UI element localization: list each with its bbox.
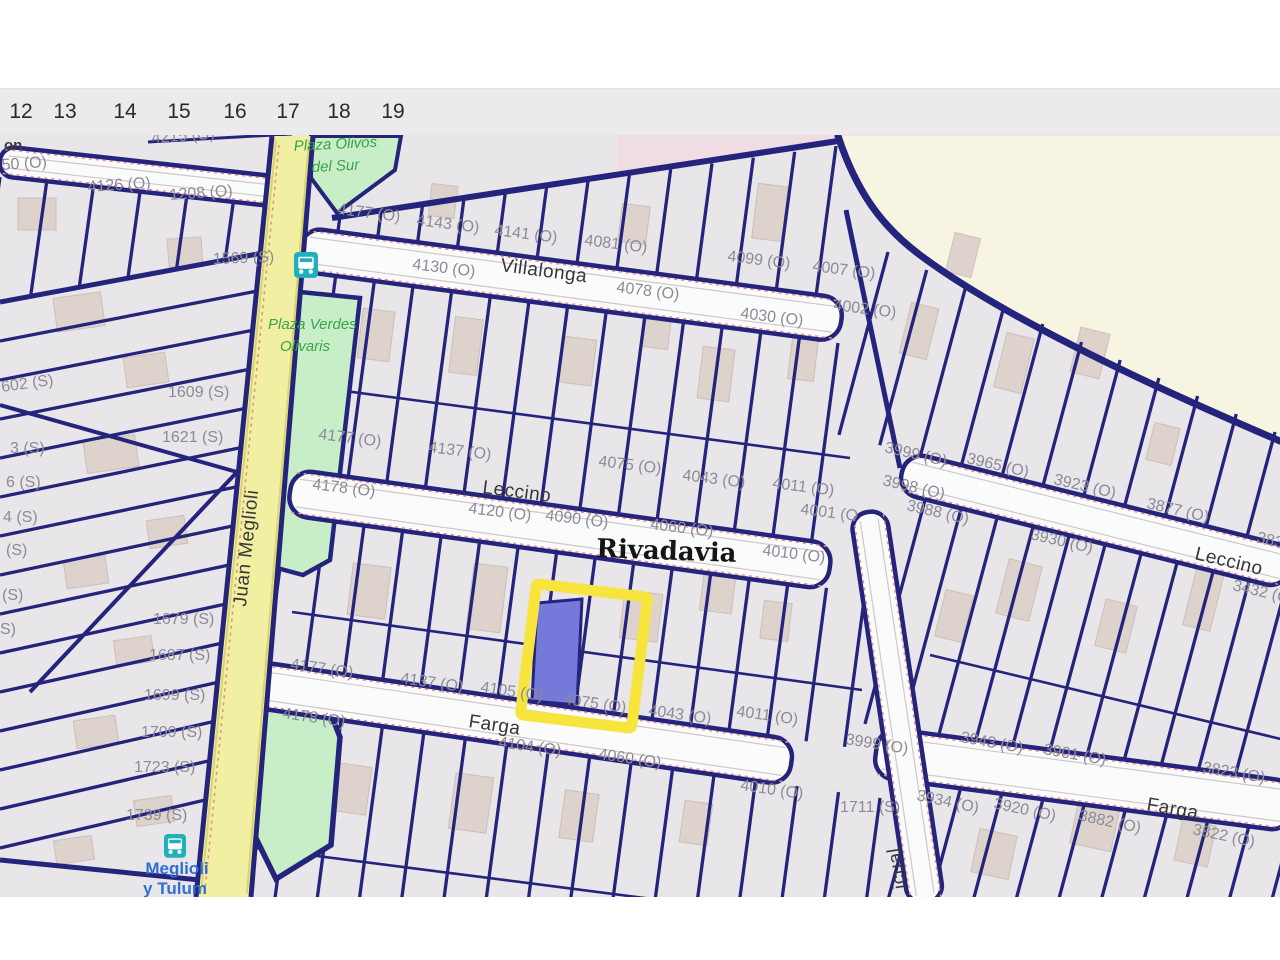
bus-stop-icon: [294, 252, 318, 278]
parcel-label: 50 (O): [1, 154, 47, 174]
bus-stop-icon: [164, 834, 186, 858]
parcel-label: 1723 (S): [134, 759, 195, 776]
parcel-label: 1679 (S): [153, 611, 214, 628]
locality-label: Rivadavia: [596, 534, 737, 569]
parcel-label: S): [0, 621, 16, 638]
map-geometry: [177, 850, 181, 854]
parcel-label: 1609 (S): [168, 384, 229, 401]
parcel-label: 1709 (S): [141, 724, 202, 741]
parcel-label: 1711 (S): [840, 799, 900, 816]
ruler-strip: 1213141516171819: [0, 88, 1280, 136]
bus-stop-label: Meglioli: [145, 859, 208, 878]
building-footprint: [788, 337, 819, 382]
map-viewport[interactable]: 4215 (O)on50 (O)4126 (O)1208 (O)1569 (S)…: [0, 135, 1280, 897]
parcel-label: 1621 (S): [162, 429, 223, 446]
parcel-label: 1699 (S): [144, 687, 205, 704]
parcel-label: 1569 (S): [213, 249, 275, 268]
ruler-number: 14: [113, 100, 136, 124]
plaza-label: del Sur: [311, 156, 360, 176]
map-geometry: [300, 258, 312, 262]
ruler-number: 13: [53, 100, 76, 124]
plaza-label: Plaza Verdes: [268, 316, 357, 333]
top-white-margin: [0, 0, 1280, 88]
ruler-number: 19: [381, 100, 404, 124]
parcel-label: 6 (S): [6, 474, 41, 491]
ruler-number: 15: [167, 100, 190, 124]
gis-viewer-page: 1213141516171819 4215 (O)on50 (O)4126 (O…: [0, 0, 1280, 960]
parcel-label: (S): [2, 587, 23, 604]
ruler-number: 17: [276, 100, 299, 124]
map-geometry: [299, 270, 303, 274]
parcel-label: (S): [6, 542, 27, 559]
building-footprint: [54, 835, 95, 864]
building-footprint: [18, 198, 56, 230]
parcel-label: 1687 (S): [149, 647, 210, 664]
ruler-number: 16: [223, 100, 246, 124]
map-canvas[interactable]: 4215 (O)on50 (O)4126 (O)1208 (O)1569 (S)…: [0, 135, 1280, 897]
plaza-label: Olivaris: [280, 338, 331, 355]
parcel-label: 4 (S): [3, 509, 38, 526]
parcel-label: 3 (S): [10, 440, 45, 457]
bottom-white-margin: [0, 897, 1280, 960]
parcel-label: 1739 (S): [126, 807, 187, 824]
bus-stop-label: y Tulum: [143, 879, 207, 897]
street-fragment-label: on: [4, 137, 22, 154]
map-geometry: [309, 270, 313, 274]
building-footprint: [123, 352, 169, 388]
building-footprint: [357, 308, 395, 362]
map-geometry: [169, 850, 173, 854]
building-footprint: [760, 600, 792, 641]
map-geometry: [169, 840, 180, 844]
ruler-number: 12: [9, 100, 32, 124]
ruler-number: 18: [327, 100, 350, 124]
